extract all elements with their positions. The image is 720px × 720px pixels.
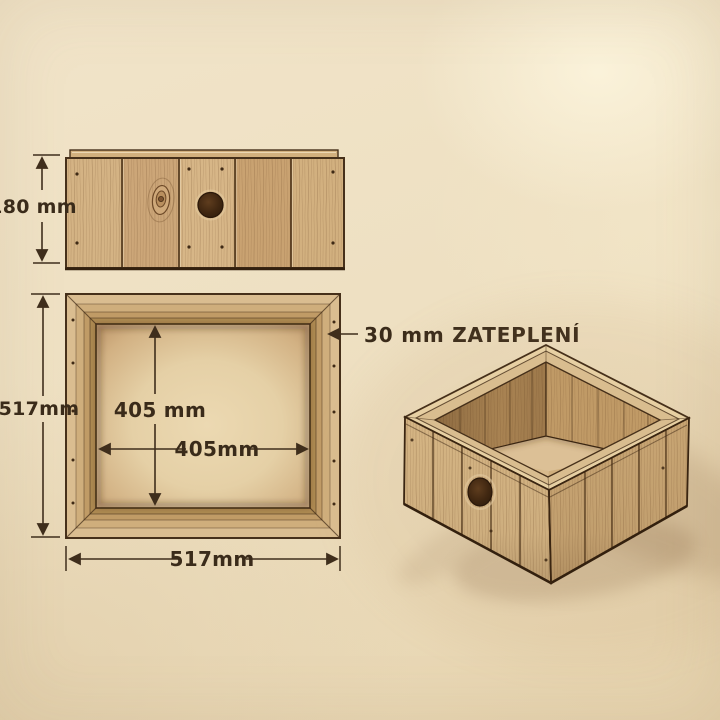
plan-outer-height-label: 517mm: [0, 398, 79, 420]
entrance-hole-icon: [196, 191, 225, 220]
plan-inner-height-label: 405 mm: [114, 398, 206, 422]
paper-background: 180 mm 517mm: [0, 0, 720, 720]
dimension-plan-outer-width: 517mm: [66, 546, 340, 571]
elevation-view: 180 mm: [0, 150, 345, 269]
entrance-hole-3d-icon: [465, 475, 495, 509]
plan-outer-width-label: 517mm: [170, 547, 255, 571]
technical-drawing: 180 mm 517mm: [0, 0, 720, 720]
plan-inner-width-label: 405mm: [175, 437, 260, 461]
top-rail: [70, 150, 338, 158]
isometric-view: [340, 300, 720, 660]
elevation-height-label: 180 mm: [0, 196, 77, 218]
